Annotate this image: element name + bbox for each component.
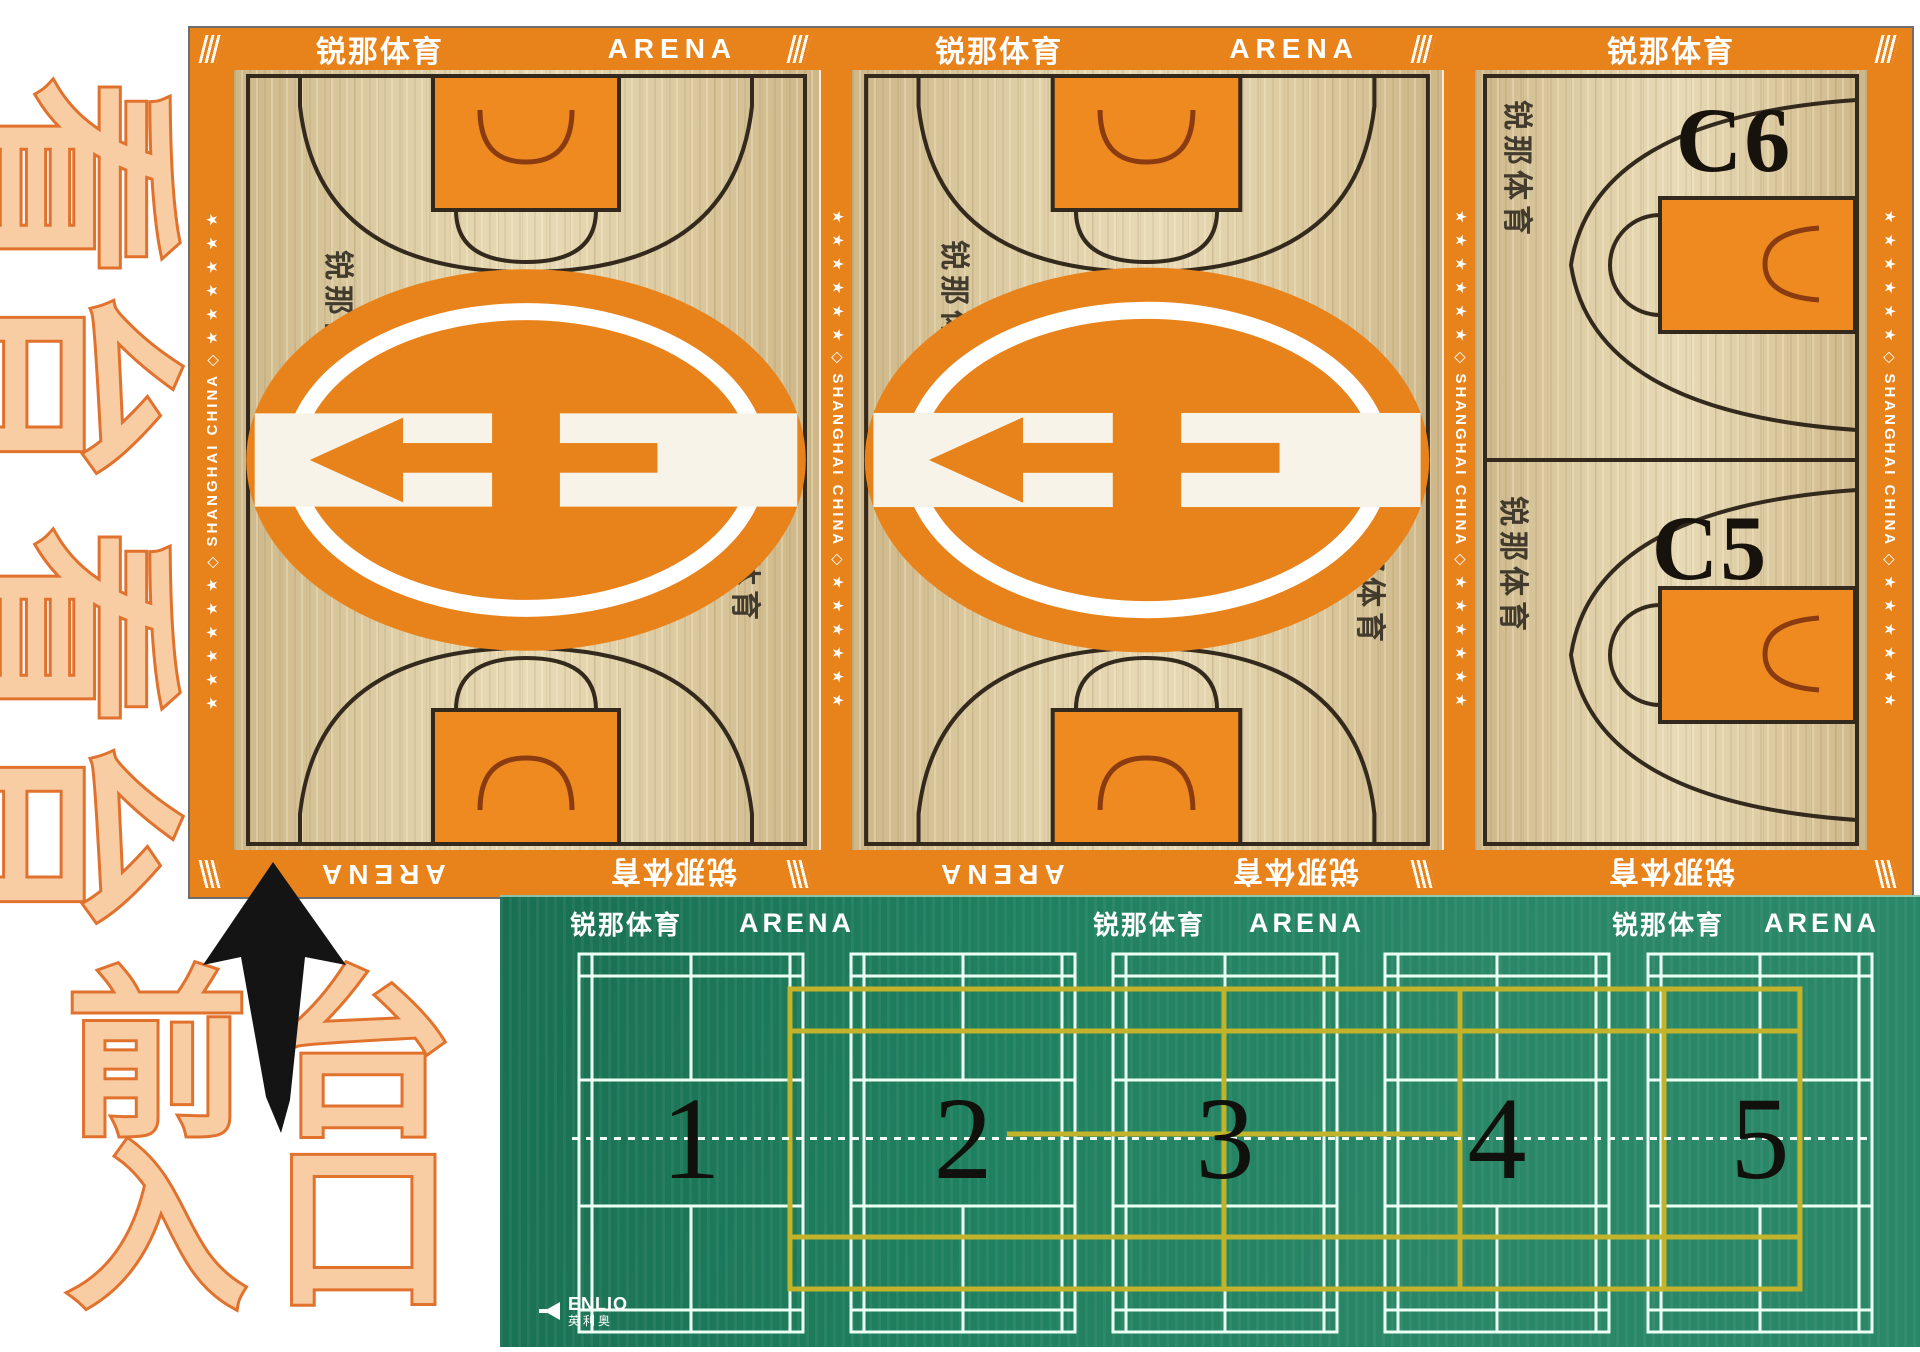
- basketball-court-c: 锐那体育 锐那体育 C6 C5: [1475, 70, 1867, 850]
- enlio-cn-label: 英利奥: [568, 1315, 628, 1327]
- bottom-border-section-c: 锐那体育: [1475, 850, 1867, 897]
- court-watermark: 锐那体育: [1498, 100, 1542, 240]
- basketball-court-b: 锐那体育 锐那体育 B4 B3: [852, 70, 1442, 850]
- brand-en-label: ARENA: [1229, 33, 1359, 65]
- brand-en-label: ARENA: [608, 33, 738, 65]
- right-star-strip: ★ ★ ★ ★ ★ ★ ◇ SHANGHAI CHINA ◇ ★ ★ ★ ★ ★…: [1867, 70, 1912, 850]
- stripe-deco-icon: [1875, 35, 1900, 63]
- shanghai-china-strip-label: ★ ★ ★ ★ ★ ★ ◇ SHANGHAI CHINA ◇ ★ ★ ★ ★ ★…: [1881, 210, 1899, 710]
- court-c6-label: C6: [1676, 87, 1792, 193]
- brand-en-label: ARENA: [935, 858, 1065, 890]
- stripe-deco-icon: [199, 35, 224, 63]
- court-c5-label: C5: [1652, 495, 1768, 601]
- badminton-court-number: 2: [934, 1071, 993, 1207]
- badminton-court-number: 3: [1196, 1071, 1255, 1207]
- center-court-logo-icon: [852, 70, 1442, 850]
- shanghai-china-strip-label: ★ ★ ★ ★ ★ ★ ◇ SHANGHAI CHINA ◇ ★ ★ ★ ★ ★…: [1452, 210, 1470, 710]
- brand-cn-label: 锐那体育: [609, 852, 737, 896]
- stripe-deco-icon: [1875, 860, 1900, 888]
- badminton-court-number: 1: [662, 1071, 721, 1207]
- top-border-section-c: 锐那体育: [1475, 28, 1867, 70]
- brand-cn-label: 锐那体育: [316, 27, 444, 71]
- divider-strip-ab: ★ ★ ★ ★ ★ ★ ◇ SHANGHAI CHINA ◇ ★ ★ ★ ★ ★…: [819, 70, 856, 850]
- badminton-court-number: 5: [1731, 1071, 1790, 1207]
- basketball-court-a: 锐那体育 锐那体育 A2 A1: [234, 70, 819, 850]
- stands-label-upper: 看台: [0, 80, 238, 494]
- top-border-section-a: 锐那体育 ARENA: [234, 28, 819, 70]
- enlio-arrow-icon: [538, 1300, 562, 1322]
- entrance-arrow-icon: [190, 850, 360, 1140]
- entrance-line-2: 入口: [58, 1144, 488, 1316]
- bottom-border-section-b: ARENA 锐那体育: [852, 850, 1442, 897]
- brand-cn-label: 锐那体育: [1231, 852, 1359, 896]
- basketball-hall: 锐那体育 ARENA 锐那体育 ARENA 锐那体育 ARENA 锐那体育 AR…: [190, 28, 1912, 897]
- shanghai-china-strip-label: ★ ★ ★ ★ ★ ★ ◇ SHANGHAI CHINA ◇ ★ ★ ★ ★ ★…: [829, 210, 847, 710]
- court-watermark: 锐那体育: [1494, 496, 1538, 636]
- brand-cn-label: 锐那体育: [1607, 27, 1735, 71]
- divider-strip-bc: ★ ★ ★ ★ ★ ★ ◇ SHANGHAI CHINA ◇ ★ ★ ★ ★ ★…: [1442, 70, 1479, 850]
- badminton-court-number: 4: [1468, 1071, 1527, 1207]
- venue-map: 锐那体育 ARENA 锐那体育 ARENA 锐那体育 ARENA 锐那体育 AR…: [0, 0, 1920, 1352]
- enlio-logo: ENLIO 英利奥: [538, 1295, 628, 1327]
- brand-cn-label: 锐那体育: [1607, 852, 1735, 896]
- basketball-top-border: 锐那体育 ARENA 锐那体育 ARENA 锐那体育: [190, 28, 1912, 70]
- basketball-bottom-border: ARENA 锐那体育 ARENA 锐那体育 锐那体育: [190, 850, 1912, 897]
- brand-cn-label: 锐那体育: [935, 27, 1063, 71]
- badminton-zone: 锐那体育 ARENA 锐那体育 ARENA 锐那体育 ARENA: [500, 895, 1920, 1347]
- enlio-name-label: ENLIO: [568, 1295, 628, 1313]
- center-court-logo-icon: [234, 70, 819, 850]
- top-border-section-b: 锐那体育 ARENA: [852, 28, 1442, 70]
